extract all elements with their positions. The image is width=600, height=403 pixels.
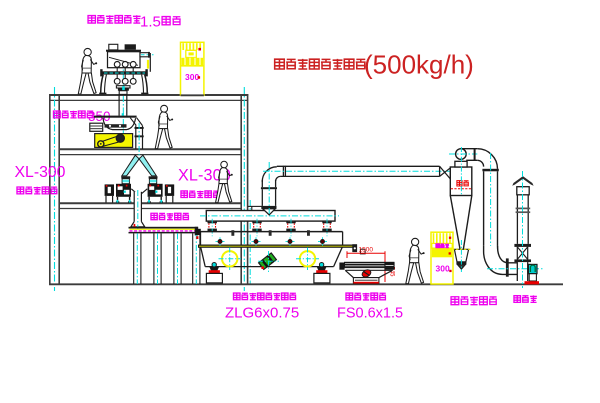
svg-text:FS0.6x1.5: FS0.6x1.5 — [337, 306, 403, 322]
svg-text:300: 300 — [436, 264, 450, 274]
svg-text:(500kg/h): (500kg/h) — [364, 50, 474, 80]
svg-text:XL-300: XL-300 — [15, 164, 66, 181]
svg-text:1.5: 1.5 — [140, 14, 161, 31]
svg-text:ZLG6x0.75: ZLG6x0.75 — [225, 305, 299, 322]
svg-text:1500: 1500 — [359, 247, 374, 254]
svg-text:300: 300 — [185, 72, 199, 82]
